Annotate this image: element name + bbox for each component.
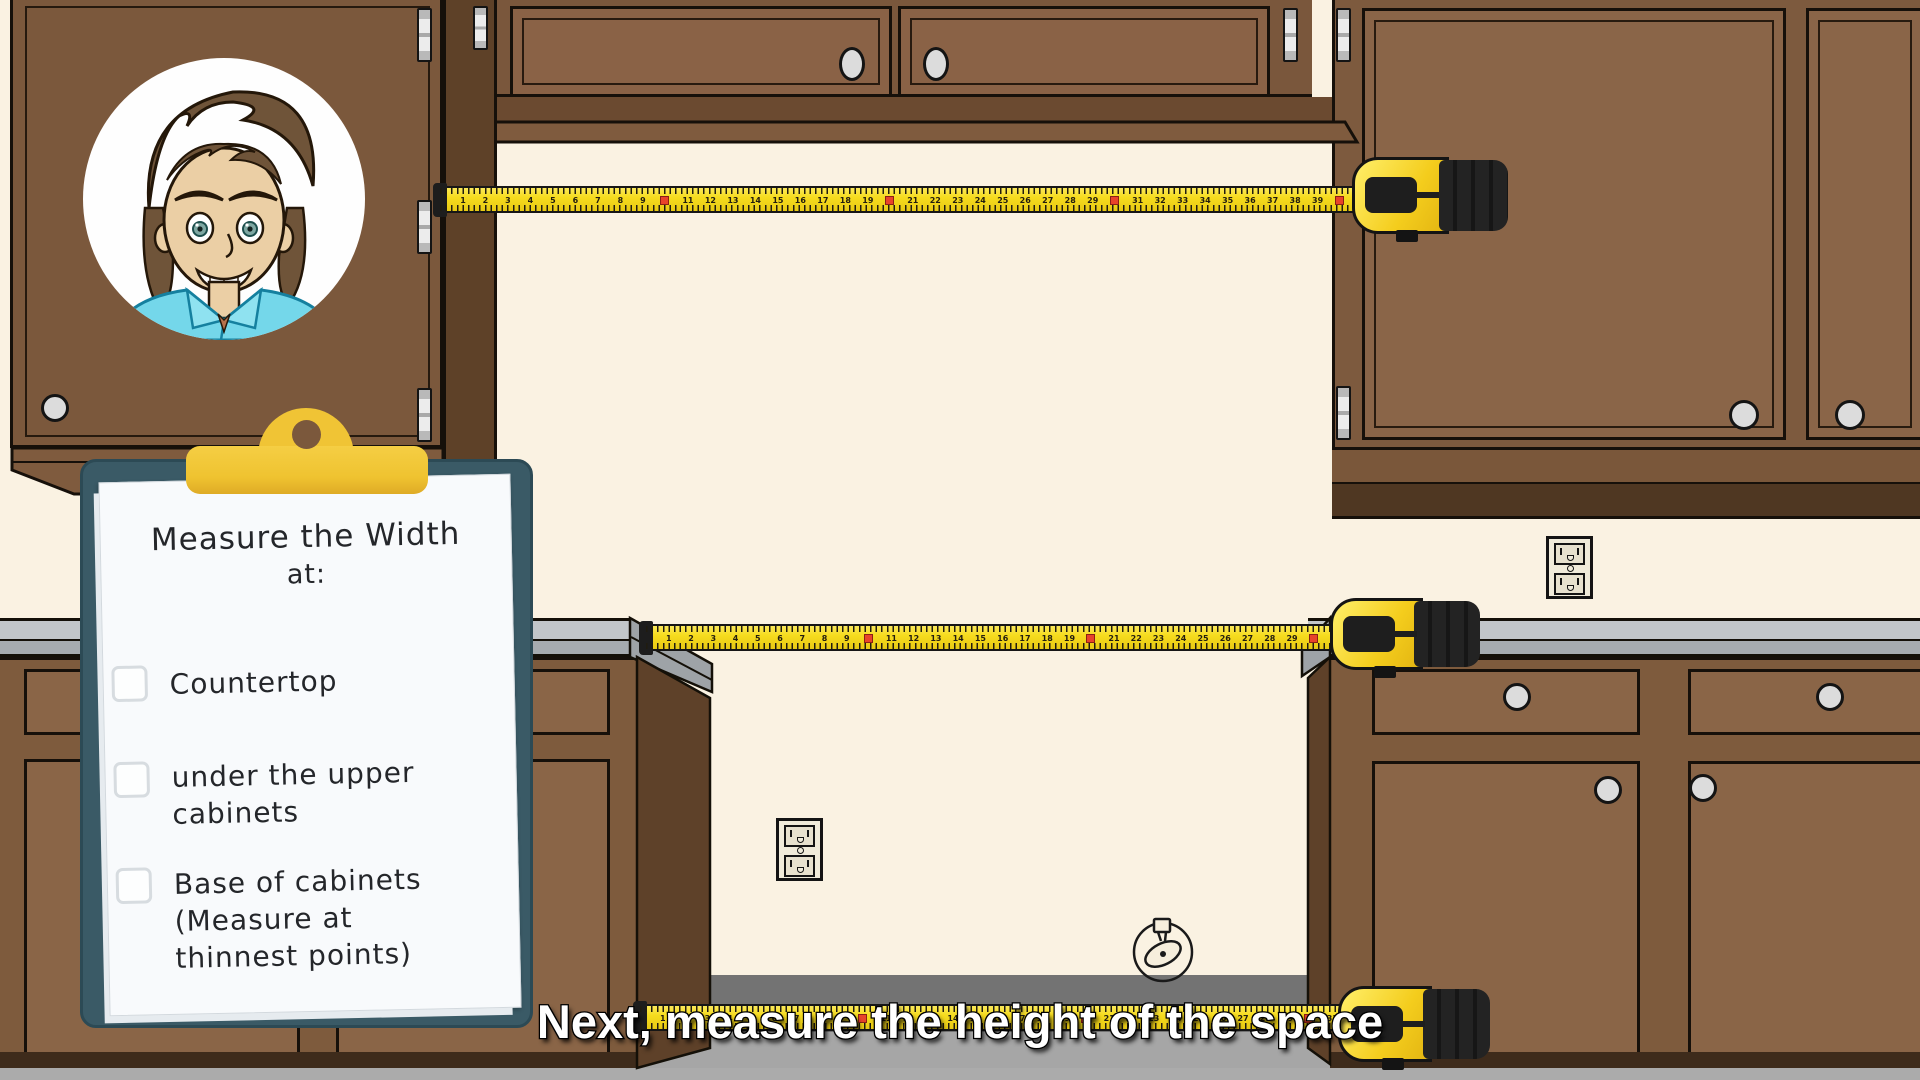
upper-middle-knob-left [839,47,865,81]
tape-unit-mark: 38 [1290,196,1301,205]
tape-unit-mark: 8 [819,634,830,643]
upper-right-knob-left [1729,400,1759,430]
tape-unit-mark [864,634,873,643]
tape-unit-mark: 29 [1087,196,1098,205]
tape-unit-mark: 16 [997,634,1008,643]
tape-unit-mark: 13 [727,196,738,205]
tape-unit-mark: 12 [705,196,716,205]
tape-unit-mark: 14 [953,634,964,643]
hinge-icon [417,388,432,442]
upper-middle-knob-right [923,47,949,81]
checkbox-base-of-cabinets[interactable] [116,867,153,904]
tape-unit-mark: 35 [1222,196,1233,205]
middle-run-trim [473,122,1357,142]
checklist-title-line2: at: [101,555,512,595]
item-label-line: Countertop [169,662,338,703]
tape-unit-mark [1086,634,1095,643]
tape-unit-mark: 4 [730,634,741,643]
tape-unit-mark: 16 [795,196,806,205]
tape-unit-mark: 19 [862,196,873,205]
subtitle-caption: Next, measure the height of the space [0,994,1920,1049]
upper-right-frame-band [1332,447,1920,485]
tape-unit-mark: 26 [1220,634,1231,643]
clipboard-clip-hole [292,420,321,449]
tape-unit-mark: 27 [1042,196,1053,205]
tape-unit-mark: 15 [772,196,783,205]
hinge-icon [1336,386,1351,440]
tape-unit-mark: 6 [775,634,786,643]
tape-unit-mark: 2 [480,196,491,205]
presenter-avatar [83,58,365,340]
tape-unit-mark: 3 [708,634,719,643]
tape-unit-mark: 22 [1131,634,1142,643]
tape-unit-mark: 29 [1286,634,1297,643]
tape-unit-mark [885,196,894,205]
tape-unit-mark: 27 [1242,634,1253,643]
tape-unit-mark: 9 [841,634,852,643]
tape-unit-mark: 34 [1200,196,1211,205]
tape-unit-mark: 23 [1153,634,1164,643]
hinge-icon [417,8,432,62]
upper-middle-door-right [898,6,1270,97]
checklist-title-line1: Measure the Width [100,515,511,560]
tape-unit-mark: 28 [1264,634,1275,643]
base-right-door-knob-2 [1689,774,1717,802]
tape-measure-blade-countertop: 1234567891112131415161718192122232425262… [646,624,1338,651]
tape-unit-mark: 24 [975,196,986,205]
base-right-drawer-knob-2 [1816,683,1844,711]
base-right-drawer-knob-1 [1503,683,1531,711]
tape-unit-mark: 22 [930,196,941,205]
hinge-icon [473,6,488,50]
tape-unit-mark [1110,196,1119,205]
base-left-toe-kick [0,1052,637,1068]
tape-unit-mark [660,196,669,205]
tape-unit-mark: 12 [908,634,919,643]
tape-unit-mark: 8 [615,196,626,205]
tape-unit-mark: 25 [997,196,1008,205]
tape-unit-mark: 25 [1197,634,1208,643]
tall-cabinet-knob [41,394,69,422]
tape-measure-blade-top: 1234567891112131415161718192122232425262… [440,186,1364,213]
upper-right-knob-right [1835,400,1865,430]
tape-unit-mark: 9 [637,196,648,205]
checklist-item-base-of-cabinets: Base of cabinets (Measure at thinnest po… [174,861,424,977]
tape-unit-mark: 7 [592,196,603,205]
tape-unit-mark: 1 [663,634,674,643]
tape-unit-mark: 21 [1108,634,1119,643]
checkbox-countertop[interactable] [111,665,148,702]
tape-unit-mark: 17 [817,196,828,205]
tape-unit-mark: 3 [502,196,513,205]
tape-unit-mark: 7 [797,634,808,643]
hinge-icon [1283,8,1298,62]
tape-unit-mark: 31 [1132,196,1143,205]
tape-measure-body-countertop [1330,598,1480,670]
tape-unit-mark: 18 [1042,634,1053,643]
hinge-icon [417,200,432,254]
tape-unit-mark: 17 [1019,634,1030,643]
tape-measure-body-top [1352,157,1508,234]
checklist-title: Measure the Width at: [100,515,511,595]
tape-unit-mark: 18 [840,196,851,205]
upper-middle-door-left [510,6,892,97]
hinge-icon [1336,8,1351,62]
tape-unit-mark: 13 [930,634,941,643]
tape-unit-mark: 37 [1267,196,1278,205]
clipboard-clip-bar [186,446,428,494]
tape-unit-mark: 26 [1020,196,1031,205]
checklist-item-countertop: Countertop [169,662,338,703]
kitchen-scene: 1234567891112131415161718192122232425262… [0,0,1920,1080]
tape-unit-mark: 24 [1175,634,1186,643]
tape-unit-mark: 2 [686,634,697,643]
tape-unit-mark: 6 [570,196,581,205]
upper-right-door-right [1806,8,1920,440]
tape-unit-mark: 5 [752,634,763,643]
tape-unit-mark: 21 [907,196,918,205]
item-label-line: under the upper [171,754,415,796]
tape-unit-mark: 11 [682,196,693,205]
power-outlet-icon [776,818,823,881]
tape-unit-mark: 4 [525,196,536,205]
tape-unit-mark: 1 [457,196,468,205]
power-outlet-icon [1546,536,1593,599]
tape-unit-mark: 33 [1177,196,1188,205]
tape-unit-mark: 5 [547,196,558,205]
item-label-line: cabinets [172,791,416,833]
tape-unit-mark: 14 [750,196,761,205]
item-label-line: thinnest points) [175,935,423,977]
tape-unit-mark: 36 [1245,196,1256,205]
tape-unit-mark: 32 [1155,196,1166,205]
upper-right-dark-band [1332,482,1920,519]
base-right-drawer-2 [1688,669,1920,735]
tape-unit-mark: 23 [952,196,963,205]
base-right-door-knob-1 [1594,776,1622,804]
tape-unit-mark [1309,634,1318,643]
tape-unit-mark: 39 [1312,196,1323,205]
upper-middle-frame-band [485,97,1345,124]
checkbox-under-upper-cabinets[interactable] [113,761,150,798]
checklist-item-under-upper-cabinets: under the upper cabinets [171,754,415,833]
tape-unit-mark: 28 [1065,196,1076,205]
tape-unit-mark: 15 [975,634,986,643]
tape-unit-mark [1335,196,1344,205]
item-label-line: Base of cabinets [174,861,422,903]
clipboard-paper: Measure the Width at: Countertop under t… [98,474,521,1017]
tape-unit-mark: 11 [886,634,897,643]
tape-unit-mark: 19 [1064,634,1075,643]
item-label-line: (Measure at [174,898,422,940]
gas-hookup-icon [1128,914,1198,986]
floor-strip [0,1068,1920,1080]
